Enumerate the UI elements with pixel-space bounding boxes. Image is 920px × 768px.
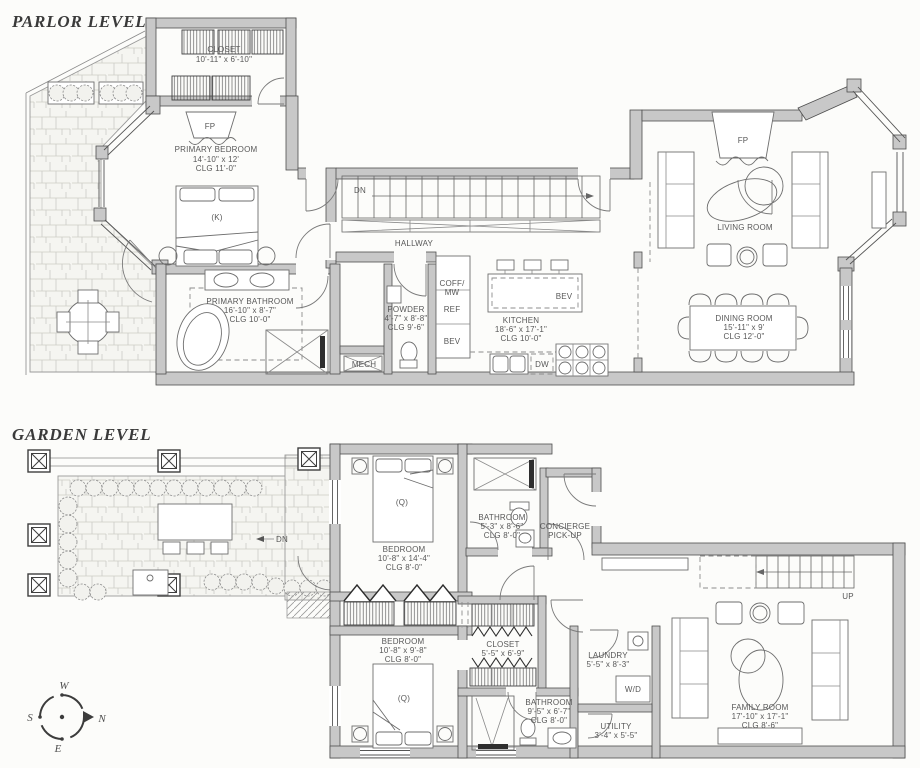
toilet bbox=[401, 342, 417, 362]
label-bathroom1-clg: CLG 8'-0" bbox=[484, 531, 520, 540]
label-powder-name: POWDER bbox=[387, 305, 424, 314]
label-closet-dims: 10'-11" x 6'-10" bbox=[196, 55, 252, 64]
label-bedroom1-clg: CLG 8'-0" bbox=[386, 563, 422, 572]
floorplan-drawing: PARLOR LEVEL CLOSET 10'-11" x 6'-10" FP … bbox=[0, 0, 920, 768]
floorplan: PARLOR LEVEL CLOSET 10'-11" x 6'-10" FP … bbox=[0, 0, 920, 768]
label-concierge-1: CONCIERGE bbox=[540, 522, 590, 531]
label-bedroom2-clg: CLG 8'-0" bbox=[385, 655, 421, 664]
label-living-room: LIVING ROOM bbox=[717, 223, 773, 232]
parlor-stairs bbox=[306, 176, 610, 232]
compass-e: E bbox=[54, 743, 62, 755]
label-laundry-name: LAUNDRY bbox=[588, 651, 628, 660]
label-family-room-clg: CLG 8'-6" bbox=[742, 721, 778, 730]
label-kitchen-clg: CLG 10'-0" bbox=[500, 334, 541, 343]
label-ref: REF bbox=[444, 305, 461, 314]
label-bathroom1-name: BATHROOM bbox=[478, 513, 525, 522]
label-queen-bed-1: (Q) bbox=[396, 498, 408, 507]
label-utility-dims: 3'-4" x 5'-5" bbox=[595, 731, 638, 740]
label-mech: MECH bbox=[352, 360, 376, 369]
label-bedroom2-dims: 10'-8" x 9'-8" bbox=[379, 646, 427, 655]
sofa bbox=[658, 152, 694, 248]
label-kitchen-name: KITCHEN bbox=[503, 316, 540, 325]
label-stairs-up: UP bbox=[842, 592, 854, 601]
label-powder-clg: CLG 9'-6" bbox=[388, 323, 424, 332]
label-closet-name: CLOSET bbox=[207, 45, 240, 54]
label-garden-dn: DN bbox=[276, 535, 288, 544]
label-primary-bedroom-dims: 14'-10" x 12' bbox=[193, 155, 240, 164]
compass-s: S bbox=[27, 712, 33, 724]
parlor-level: PARLOR LEVEL CLOSET 10'-11" x 6'-10" FP … bbox=[11, 12, 906, 385]
label-primary-bedroom-clg: CLG 11'-0" bbox=[196, 164, 236, 173]
label-dining-dims: 15'-11" x 9' bbox=[723, 323, 764, 332]
label-family-room-name: FAMILY ROOM bbox=[731, 703, 788, 712]
label-bathroom2-clg: CLG 8'-0" bbox=[531, 716, 567, 725]
label-primary-bathroom-dims: 16'-10" x 8'-7" bbox=[224, 306, 276, 315]
compass-w: W bbox=[59, 680, 69, 692]
label-bedroom2-name: BEDROOM bbox=[382, 637, 425, 646]
parlor-level-title: PARLOR LEVEL bbox=[11, 12, 146, 31]
parlor-terrace bbox=[26, 31, 157, 375]
sofa bbox=[812, 620, 848, 720]
label-garden-closet-name: CLOSET bbox=[486, 640, 519, 649]
label-primary-bedroom-name: PRIMARY BEDROOM bbox=[175, 145, 258, 154]
parlor-closet-fixtures bbox=[172, 30, 284, 104]
garden-stairs bbox=[602, 556, 854, 588]
label-hallway: HALLWAY bbox=[395, 239, 434, 248]
garden-terrace bbox=[28, 448, 332, 618]
kitchen-sink bbox=[490, 354, 528, 374]
label-wd: W/D bbox=[625, 685, 641, 694]
label-garden-closet-dims: 5'-5" x 6'-9" bbox=[482, 649, 525, 658]
grill bbox=[133, 570, 168, 595]
sofa bbox=[672, 618, 708, 718]
label-island-bev: BEV bbox=[556, 292, 573, 301]
label-primary-bathroom-name: PRIMARY BATHROOM bbox=[206, 297, 293, 306]
label-utility-name: UTILITY bbox=[600, 722, 632, 731]
label-laundry-dims: 5'-5" x 8'-3" bbox=[587, 660, 630, 669]
label-kitchen-dims: 18'-6" x 17'-1" bbox=[495, 325, 547, 334]
label-dining-clg: CLG 12'-0" bbox=[723, 332, 764, 341]
label-coff: COFF/ bbox=[440, 279, 466, 288]
label-dining-name: DINING ROOM bbox=[715, 314, 772, 323]
garden-table bbox=[158, 504, 232, 554]
label-bathroom2-dims: 9'-5" x 6'-7" bbox=[528, 707, 571, 716]
garden-level-title: GARDEN LEVEL bbox=[12, 425, 151, 444]
concierge-fixtures bbox=[548, 474, 596, 560]
compass-icon: W S N E bbox=[27, 680, 106, 755]
label-mw: MW bbox=[445, 288, 460, 297]
label-dw: DW bbox=[535, 360, 549, 369]
compass-n: N bbox=[97, 713, 106, 725]
label-stairs-dn: DN bbox=[354, 186, 366, 195]
label-powder-dims: 4'-7" x 8'-8" bbox=[385, 314, 428, 323]
sofa bbox=[792, 152, 828, 248]
living-room-furniture bbox=[650, 112, 886, 267]
label-bedroom-fp: FP bbox=[205, 122, 216, 131]
label-concierge-2: PICK-UP bbox=[548, 531, 582, 540]
label-bathroom2-name: BATHROOM bbox=[525, 698, 572, 707]
label-queen-bed-2: (Q) bbox=[398, 694, 410, 703]
label-bedroom1-name: BEDROOM bbox=[383, 545, 426, 554]
label-primary-bathroom-clg: CLG 10'-0" bbox=[229, 315, 270, 324]
label-family-room-dims: 17'-10" x 17'-1" bbox=[732, 712, 789, 721]
garden-level: GARDEN LEVEL DN BEDROOM 10'-8" x 14'-4" … bbox=[12, 425, 905, 758]
label-living-fp: FP bbox=[738, 136, 749, 145]
label-king-bed: (K) bbox=[211, 213, 222, 222]
label-bev-column: BEV bbox=[444, 337, 461, 346]
label-bathroom1-dims: 5'-3" x 8'-6" bbox=[481, 522, 524, 531]
label-bedroom1-dims: 10'-8" x 14'-4" bbox=[378, 554, 430, 563]
garden-window-wells bbox=[344, 585, 456, 625]
